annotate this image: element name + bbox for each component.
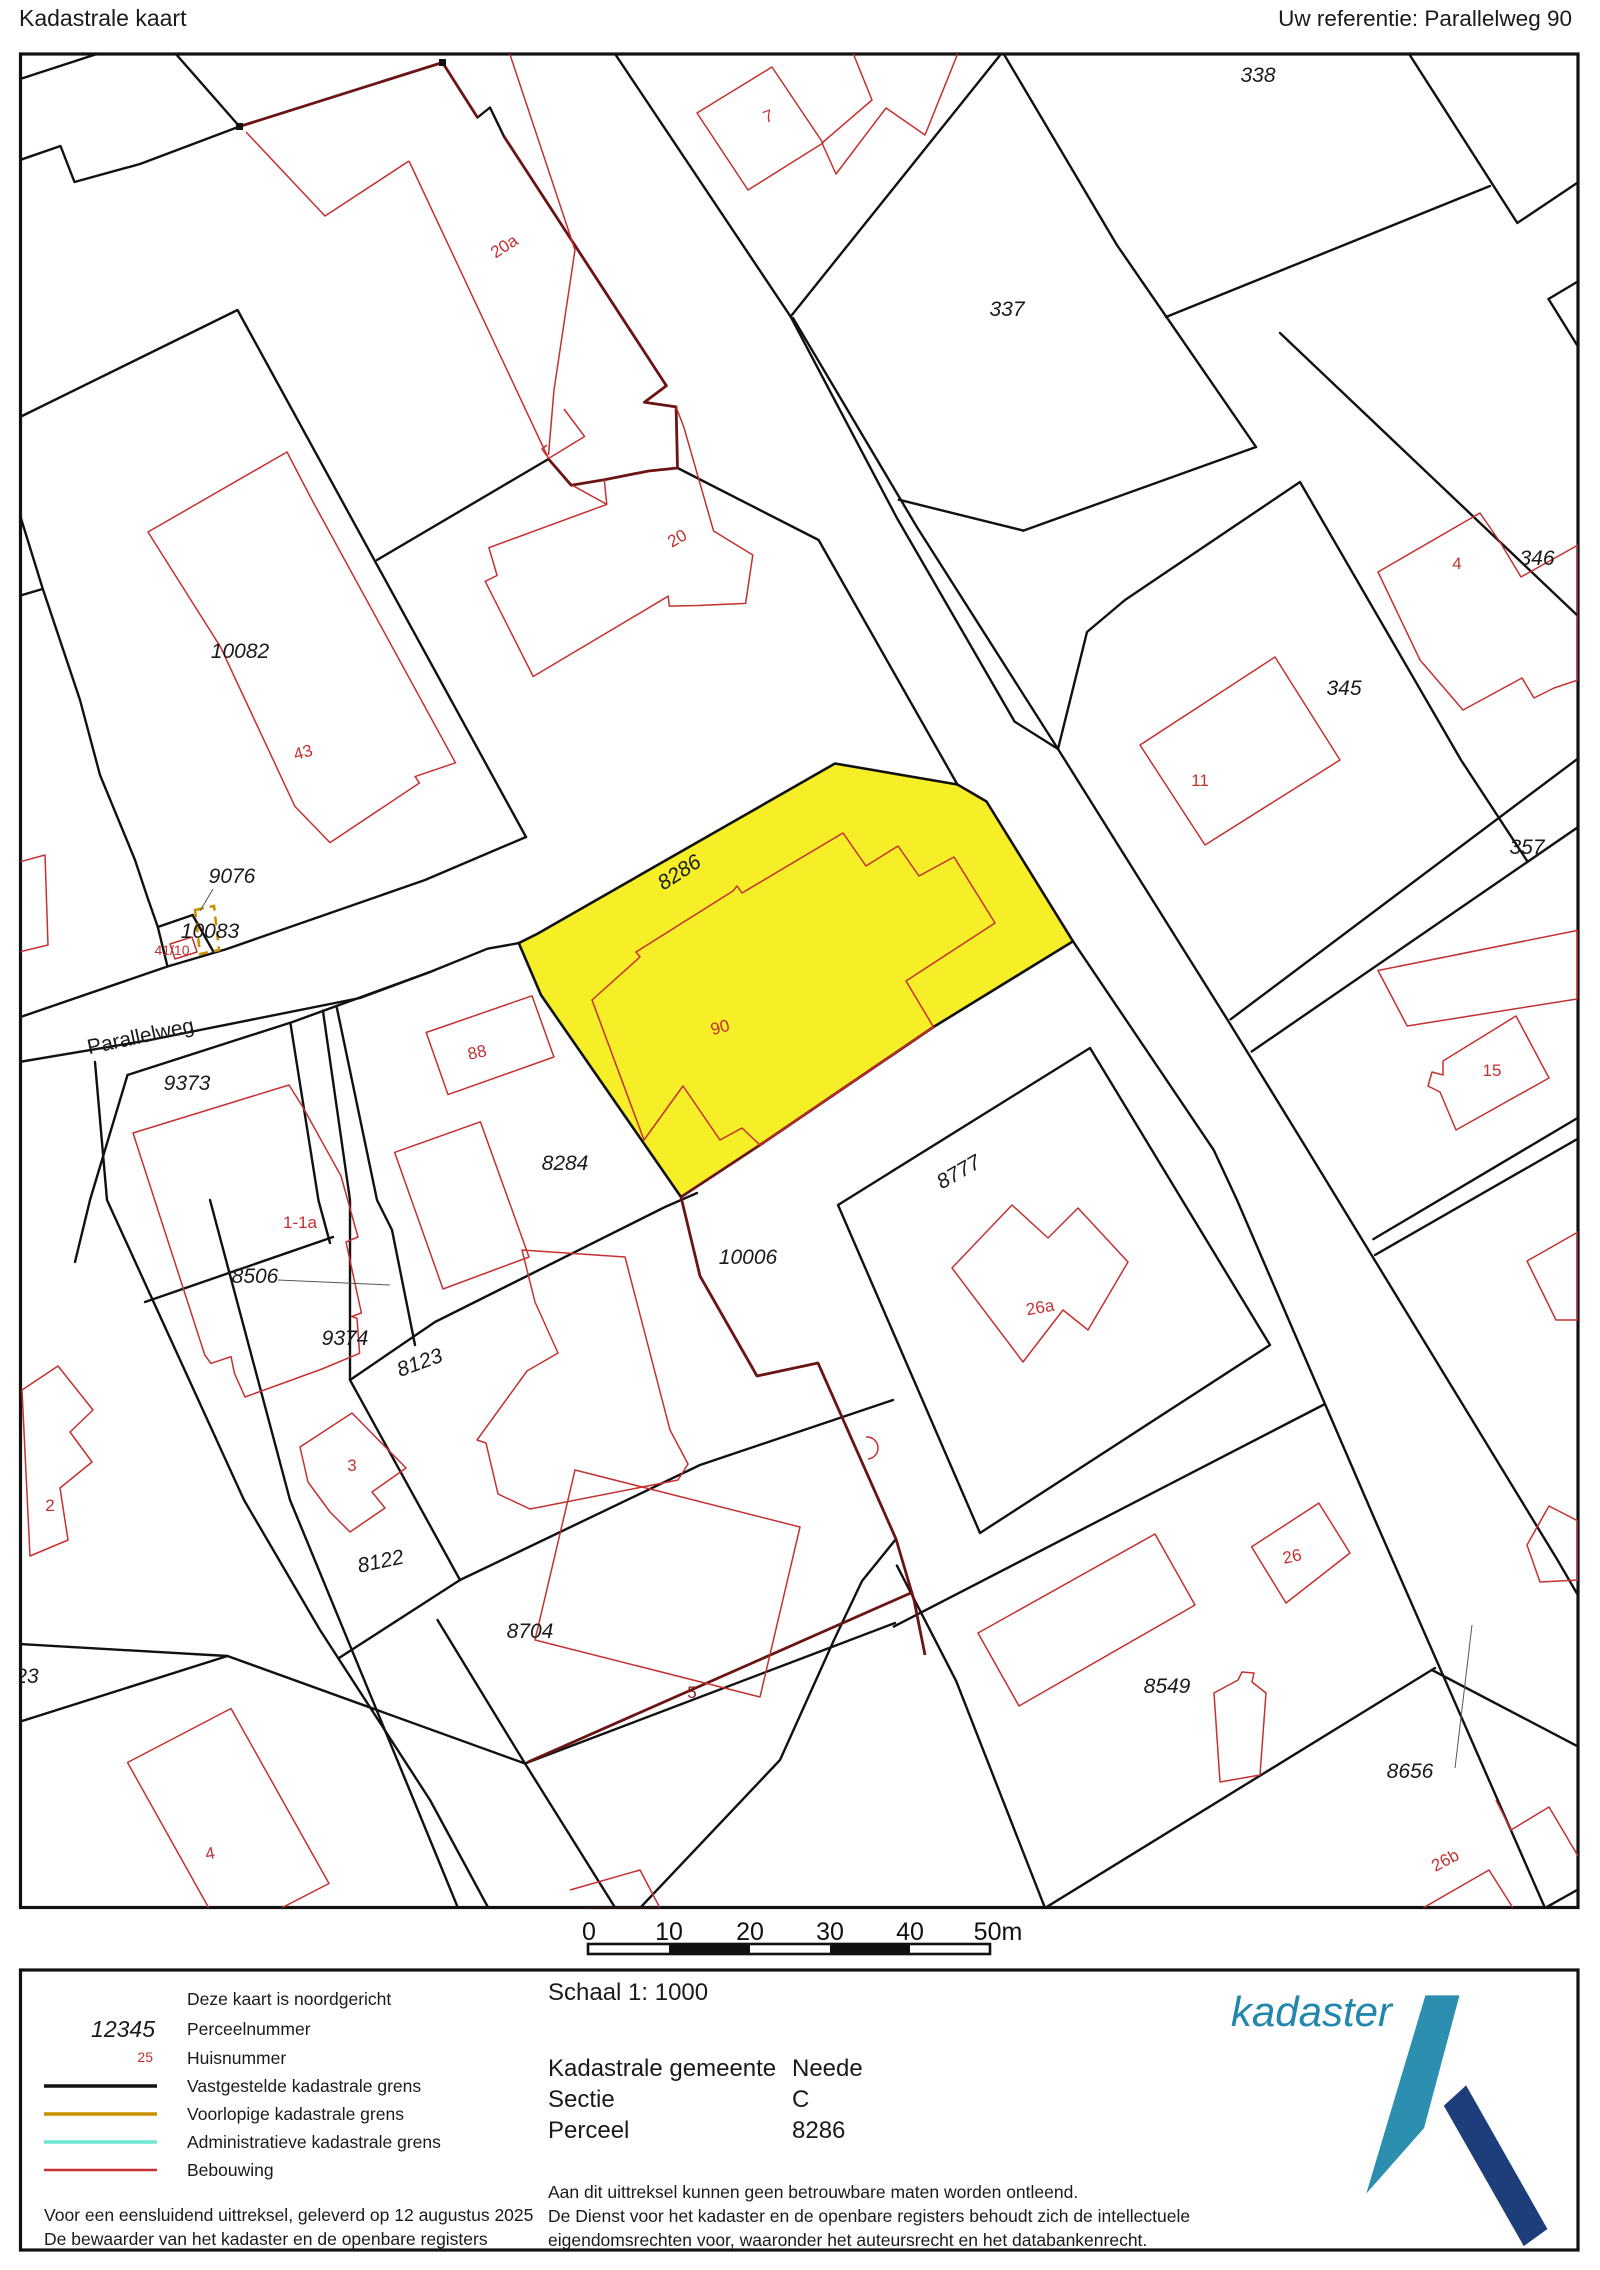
svg-text:41/10: 41/10 [154,942,189,958]
svg-text:40: 40 [896,1918,924,1946]
svg-text:23: 23 [14,1665,39,1688]
svg-text:1-1a: 1-1a [283,1213,318,1232]
svg-text:8123: 8123 [394,1344,446,1382]
svg-text:Neede: Neede [792,2055,863,2082]
svg-text:7: 7 [760,106,775,127]
svg-text:8506: 8506 [232,1265,279,1288]
svg-text:Perceelnummer: Perceelnummer [187,2019,311,2039]
svg-text:Sectie: Sectie [548,2086,615,2113]
svg-text:Schaal 1: 1000: Schaal 1: 1000 [548,1979,708,2006]
svg-text:Bebouwing: Bebouwing [187,2160,274,2180]
svg-text:2: 2 [45,1496,54,1515]
svg-text:9373: 9373 [164,1072,211,1095]
svg-text:10082: 10082 [211,640,270,663]
svg-text:43: 43 [292,741,315,764]
svg-text:30: 30 [816,1918,844,1946]
svg-text:8704: 8704 [507,1620,554,1643]
svg-text:C: C [792,2086,809,2113]
svg-text:8656: 8656 [1387,1760,1434,1783]
svg-text:4: 4 [1452,554,1461,573]
svg-text:Deze kaart is noordgericht: Deze kaart is noordgericht [187,1989,391,2009]
svg-text:20: 20 [736,1918,764,1946]
svg-text:26b: 26b [1428,1845,1462,1875]
svg-text:De bewaarder van het kadaster: De bewaarder van het kadaster en de open… [44,2229,488,2249]
svg-text:346: 346 [1519,547,1554,570]
svg-text:Aan dit uittreksel kunnen geen: Aan dit uittreksel kunnen geen betrouwba… [548,2182,1078,2202]
svg-text:8284: 8284 [542,1152,589,1175]
svg-text:Uw referentie: Parallelweg 90: Uw referentie: Parallelweg 90 [1278,6,1572,31]
svg-text:337: 337 [989,298,1025,321]
svg-text:9076: 9076 [209,865,256,888]
svg-text:12345: 12345 [91,2016,155,2042]
svg-text:0: 0 [582,1918,596,1946]
svg-text:357: 357 [1509,836,1545,859]
svg-text:Parallelweg: Parallelweg [85,1014,196,1059]
svg-text:26: 26 [1281,1545,1303,1568]
svg-text:kadaster: kadaster [1231,1988,1394,2035]
svg-text:15: 15 [1483,1061,1502,1080]
svg-text:9374: 9374 [322,1327,369,1350]
svg-text:Voor een eensluidend uittrekse: Voor een eensluidend uittreksel, gelever… [44,2205,533,2225]
svg-text:11: 11 [1191,771,1209,790]
svg-text:88: 88 [466,1041,488,1064]
svg-text:20a: 20a [487,230,522,262]
svg-text:345: 345 [1326,677,1361,700]
svg-text:Vastgestelde kadastrale grens: Vastgestelde kadastrale grens [187,2076,421,2096]
svg-text:Kadastrale kaart: Kadastrale kaart [19,5,187,31]
svg-text:10006: 10006 [719,1246,778,1269]
svg-text:25: 25 [137,2049,153,2065]
svg-text:8286: 8286 [792,2117,845,2144]
svg-text:Perceel: Perceel [548,2117,629,2144]
svg-text:20: 20 [664,525,690,551]
svg-text:50m: 50m [974,1918,1023,1946]
svg-text:De Dienst voor het kadaster en: De Dienst voor het kadaster en de openba… [548,2206,1190,2226]
svg-text:8777: 8777 [933,1150,986,1194]
svg-text:eigendomsrechten voor, waarond: eigendomsrechten voor, waaronder het aut… [548,2230,1147,2250]
svg-text:338: 338 [1240,64,1275,87]
svg-text:8549: 8549 [1144,1675,1191,1698]
svg-text:26a: 26a [1024,1296,1056,1320]
svg-text:4: 4 [204,1843,217,1863]
svg-text:3: 3 [347,1456,356,1475]
svg-text:10: 10 [655,1918,683,1946]
svg-text:5: 5 [687,1683,696,1702]
svg-text:Huisnummer: Huisnummer [187,2048,286,2068]
svg-text:Administratieve kadastrale gre: Administratieve kadastrale grens [187,2132,441,2152]
svg-text:10083: 10083 [181,920,240,943]
svg-text:8122: 8122 [355,1545,406,1577]
svg-text:Kadastrale gemeente: Kadastrale gemeente [548,2055,776,2082]
svg-text:Voorlopige kadastrale grens: Voorlopige kadastrale grens [187,2104,404,2124]
